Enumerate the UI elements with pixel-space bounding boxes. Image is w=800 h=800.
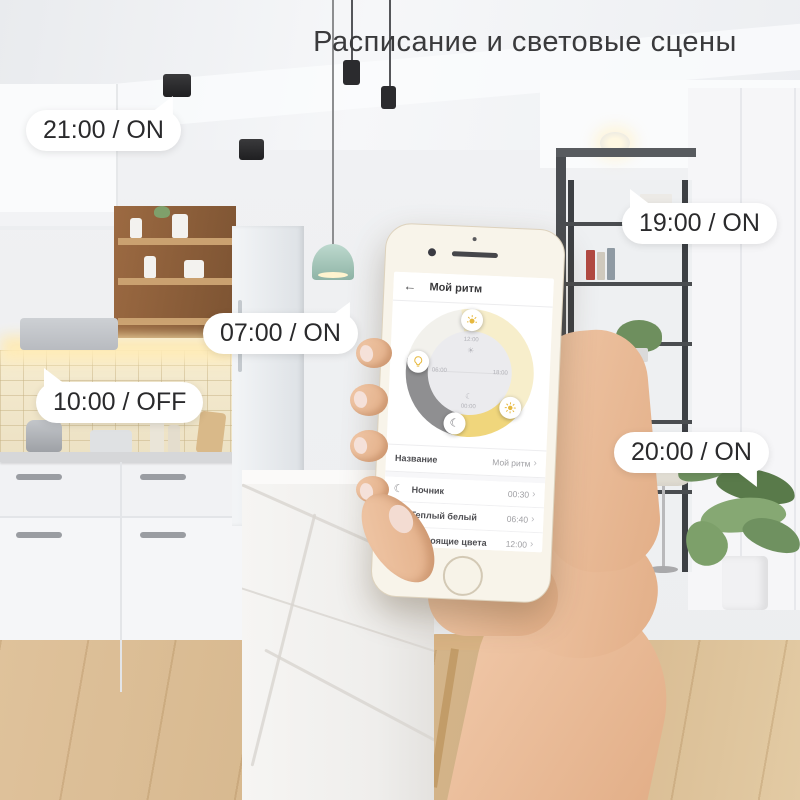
fingernail [358,344,374,363]
drawer-handle [16,532,62,538]
callout-21-00: 21:00 / ON [26,110,181,151]
floor-lamp-pole [662,486,665,570]
earpiece-speaker [452,251,498,258]
cabinet-seam [120,462,122,692]
dial-label-evening: 18:00 [493,370,508,377]
book [607,248,615,280]
drawer-handle [16,474,62,480]
sun-icon: ☀ [429,344,513,357]
callout-20-00: 20:00 / ON [614,432,769,473]
vase [130,218,142,238]
front-camera [428,248,436,256]
callout-10-00: 10:00 / OFF [36,382,203,423]
vase [172,214,188,238]
jar [150,418,164,454]
pendant-lamp [381,86,396,109]
marble-vein [251,513,317,766]
sun-icon [504,402,517,415]
back-arrow-icon[interactable]: ← [403,277,417,296]
ceiling-spotlight [239,139,264,160]
fingertip [356,338,392,368]
cutting-board [196,411,227,456]
dial-handle-night[interactable]: ☾ [443,412,466,435]
dial-ring: 12:00 ☀ 06:00 18:00 ☾ 00:00 [403,306,536,439]
pendant-lamp [343,60,360,85]
plant-sprig [154,206,170,218]
dial-handle-warm-white[interactable] [407,350,430,373]
drawer-handle [140,532,186,538]
dial-label-noon: 12:00 [429,335,513,345]
vase [144,256,156,278]
callout-07-00: 07:00 / ON [203,313,358,354]
home-button[interactable] [442,555,484,597]
fingertip [350,430,388,462]
dial-label-morning: 06:00 [432,367,447,374]
marketing-banner: ← Мой ритм 12:00 ☀ 06:00 18:00 ☾ 00:00 [0,0,800,800]
row-label: Ночник [411,485,444,496]
row-value: 06:40 [507,514,529,525]
bowl [184,260,204,278]
moon-icon: ☾ [393,483,403,494]
cooker-hood [20,318,118,350]
shelf [566,282,692,286]
door-frame-top [556,148,696,157]
sensor-dot [473,237,477,241]
dial-handle-daylight[interactable] [461,309,484,332]
drawer-handle [140,474,186,480]
fingernail [352,390,368,409]
sunrise-icon [466,314,479,327]
row-value: 00:30 [508,489,530,500]
shelf-plank [118,238,232,245]
page-title: Расписание и световые сцены [268,26,782,59]
marble-vein [264,649,434,755]
chevron-right-icon: › [533,459,537,469]
fingertip [350,384,388,416]
app-title: Мой ритм [429,281,482,295]
day-rhythm-dial: 12:00 ☀ 06:00 18:00 ☾ 00:00 [387,301,553,448]
row-value: 12:00 [505,539,527,550]
dial-handle-true-colors[interactable] [499,396,522,419]
row-value: Мой ритм [492,457,531,469]
ceiling-spotlight [163,74,191,97]
moon-icon: ☾ [449,418,459,429]
countertop [0,452,244,462]
kettle [26,420,62,452]
row-label: Название [395,453,438,465]
book [597,252,605,280]
dial-label-midnight: 00:00 [426,402,510,412]
callout-19-00: 19:00 / ON [622,203,777,244]
pot [90,430,132,454]
shelf-plank [118,278,232,285]
plant-pot [722,556,768,610]
book [586,250,595,280]
chevron-right-icon: › [532,490,536,500]
jar [168,425,180,454]
chevron-right-icon: › [530,540,534,550]
upper-cabinets [0,84,118,230]
chevron-right-icon: › [531,515,535,525]
fingernail [352,436,368,455]
bulb-icon [412,356,425,369]
moon-icon: ☾ [427,390,511,403]
